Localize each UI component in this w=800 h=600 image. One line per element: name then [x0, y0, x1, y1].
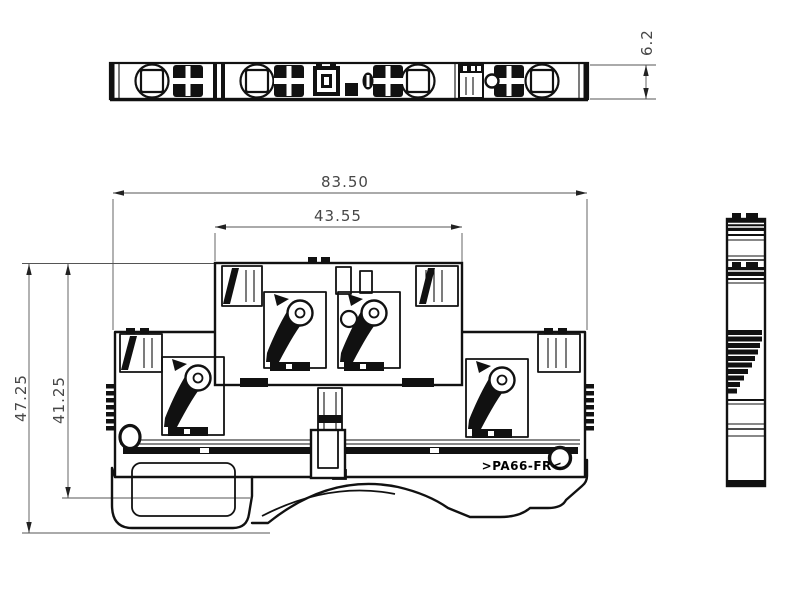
- dim-text-total-height: 47.25: [12, 374, 30, 422]
- top-view: [110, 62, 588, 100]
- center-module: [313, 62, 340, 96]
- side-view: [727, 213, 765, 486]
- material-marking-text: >PA66-FR<: [482, 459, 563, 473]
- clamp-lever-lower-left: [164, 359, 211, 436]
- drawing-canvas: 6.2 83.50 43.55 47.25 41.25: [0, 0, 800, 600]
- din-rail-foot: [112, 430, 587, 528]
- screw-hole: [486, 75, 499, 88]
- technical-drawing: 6.2 83.50 43.55 47.25 41.25: [0, 0, 800, 600]
- oval-opening: [363, 73, 374, 90]
- front-view: >PA66-FR<: [106, 257, 594, 528]
- right-end-plate: [584, 64, 588, 98]
- dim-text-thickness: 6.2: [638, 29, 656, 56]
- din-latch: [311, 430, 345, 478]
- clamp-opening-icon: [373, 65, 403, 97]
- clamp-opening-icon: [173, 65, 203, 97]
- dim-text-overall-width: 83.50: [321, 173, 369, 191]
- dim-text-upper-width: 43.55: [314, 207, 362, 225]
- rail-ribs-right: [586, 384, 594, 431]
- small-square-opening: [345, 83, 358, 96]
- rail-ribs-left: [106, 384, 114, 431]
- clamp-lever-lower-right: [468, 361, 515, 438]
- left-end-plate: [111, 64, 115, 98]
- clamp-opening-icon: [274, 65, 304, 97]
- dim-thickness: 6.2: [590, 29, 656, 99]
- test-point: [120, 426, 140, 449]
- dim-text-body-height: 41.25: [50, 376, 68, 424]
